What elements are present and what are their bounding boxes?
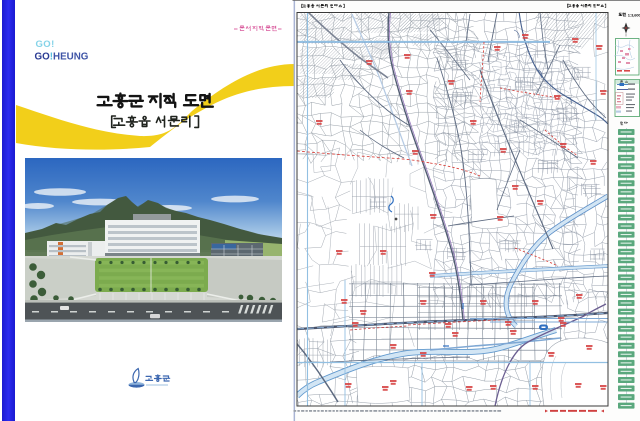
svg-text:GO!: GO!	[36, 39, 55, 50]
svg-text:GO!HEUNG: GO!HEUNG	[35, 52, 89, 63]
svg-text:1:3,600: 1:3,600	[628, 12, 640, 17]
